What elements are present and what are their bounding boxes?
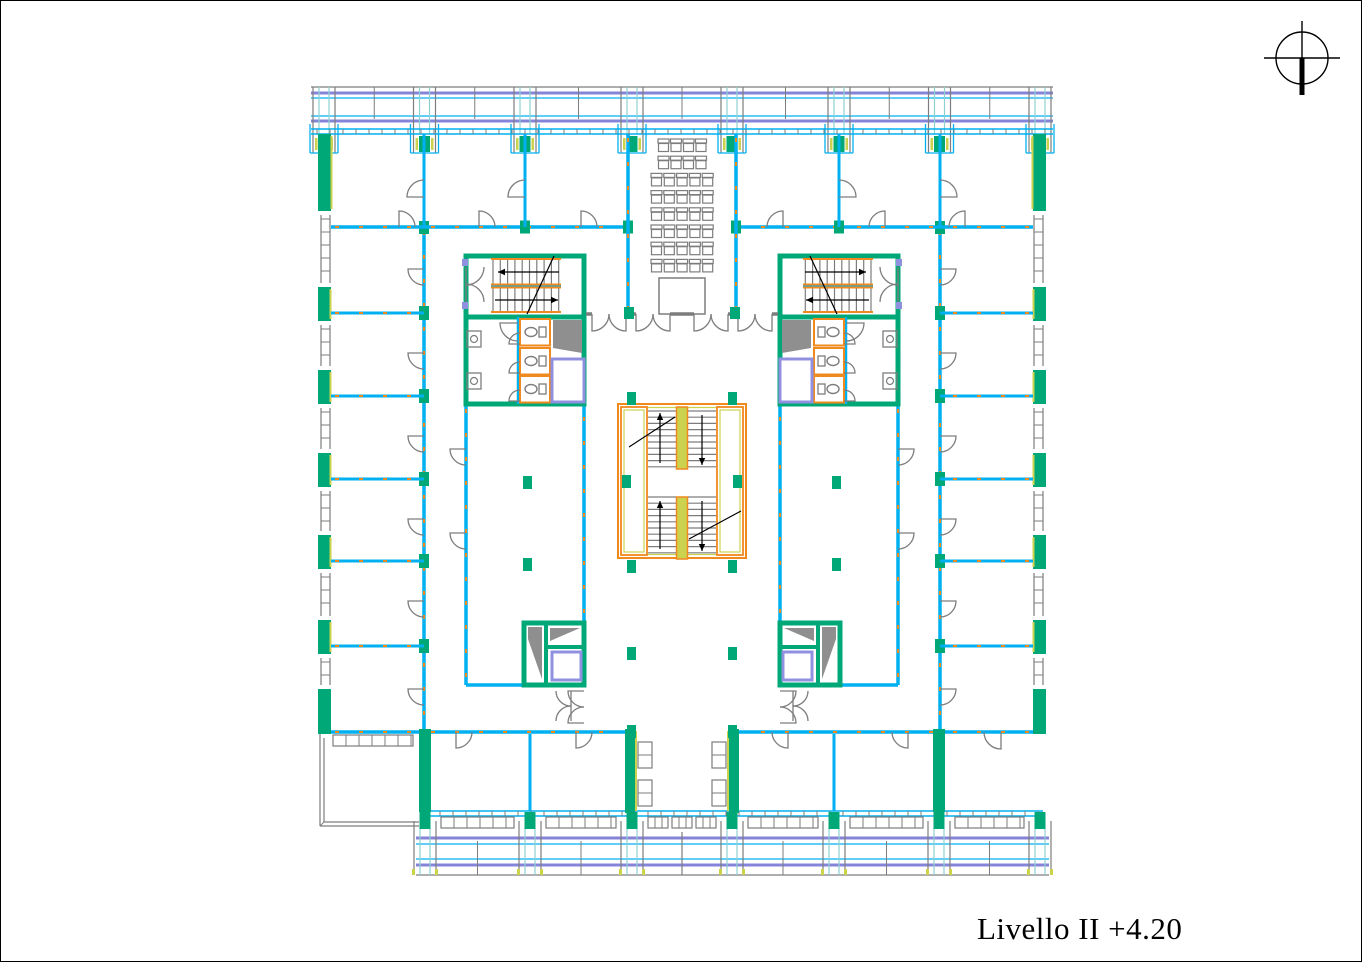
west-half (318, 134, 652, 813)
level-title: Livello II +4.20 (977, 911, 1182, 947)
east-half (712, 134, 1046, 813)
north-symbol-icon (1264, 21, 1340, 95)
bottom-facade-band (412, 811, 1053, 875)
floor-plan-drawing (1, 1, 1362, 962)
drawing-sheet: Livello II +4.20 (0, 0, 1362, 962)
terrace (320, 734, 419, 826)
auditorium-seating (651, 139, 713, 272)
central-staircase (618, 392, 746, 738)
